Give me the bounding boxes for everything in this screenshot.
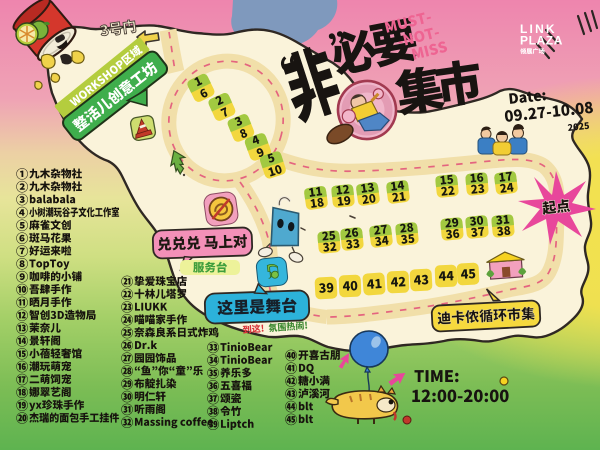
svg-text:PLAZA: PLAZA [520, 34, 563, 48]
